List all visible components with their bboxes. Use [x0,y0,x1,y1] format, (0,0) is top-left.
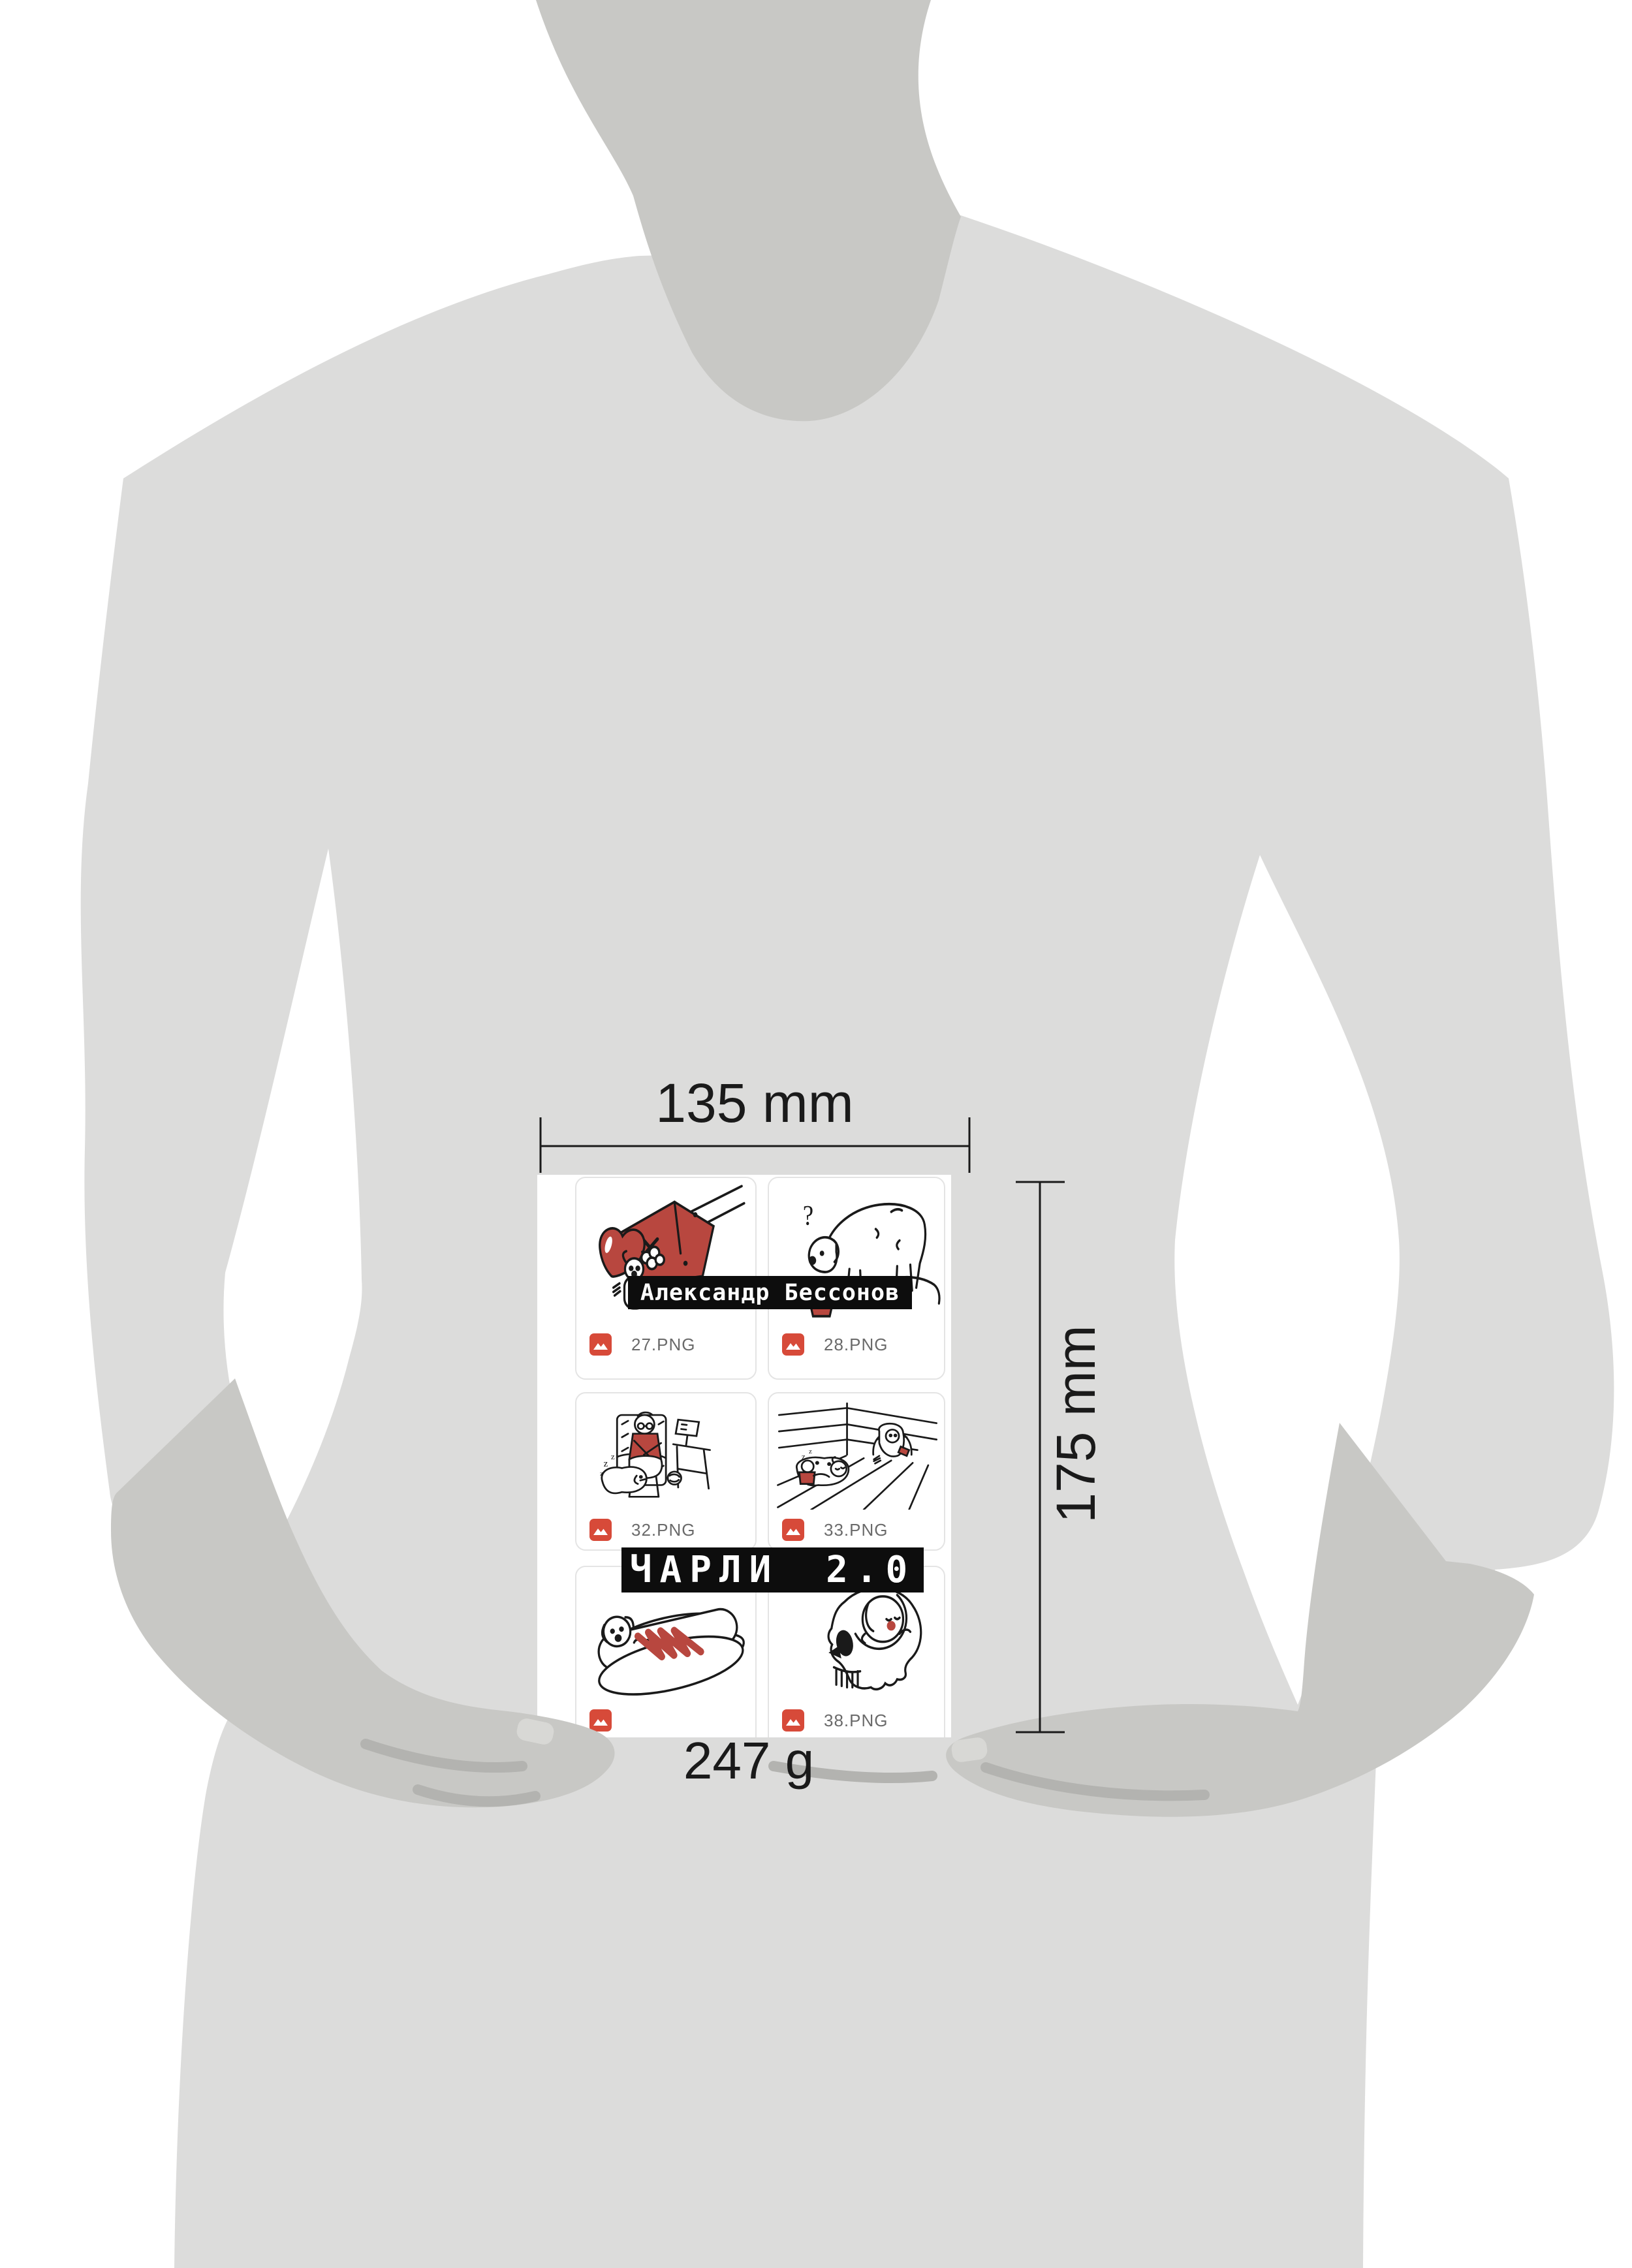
height-measurement-label: 175 mm [1044,1294,1094,1555]
weight-measurement-label: 247 g [618,1731,879,1791]
width-measurement-label: 135 mm [624,1072,885,1135]
right-hand-shape [946,1423,1534,1817]
product-size-visualization: 27.PNG ? [0,0,1632,2268]
